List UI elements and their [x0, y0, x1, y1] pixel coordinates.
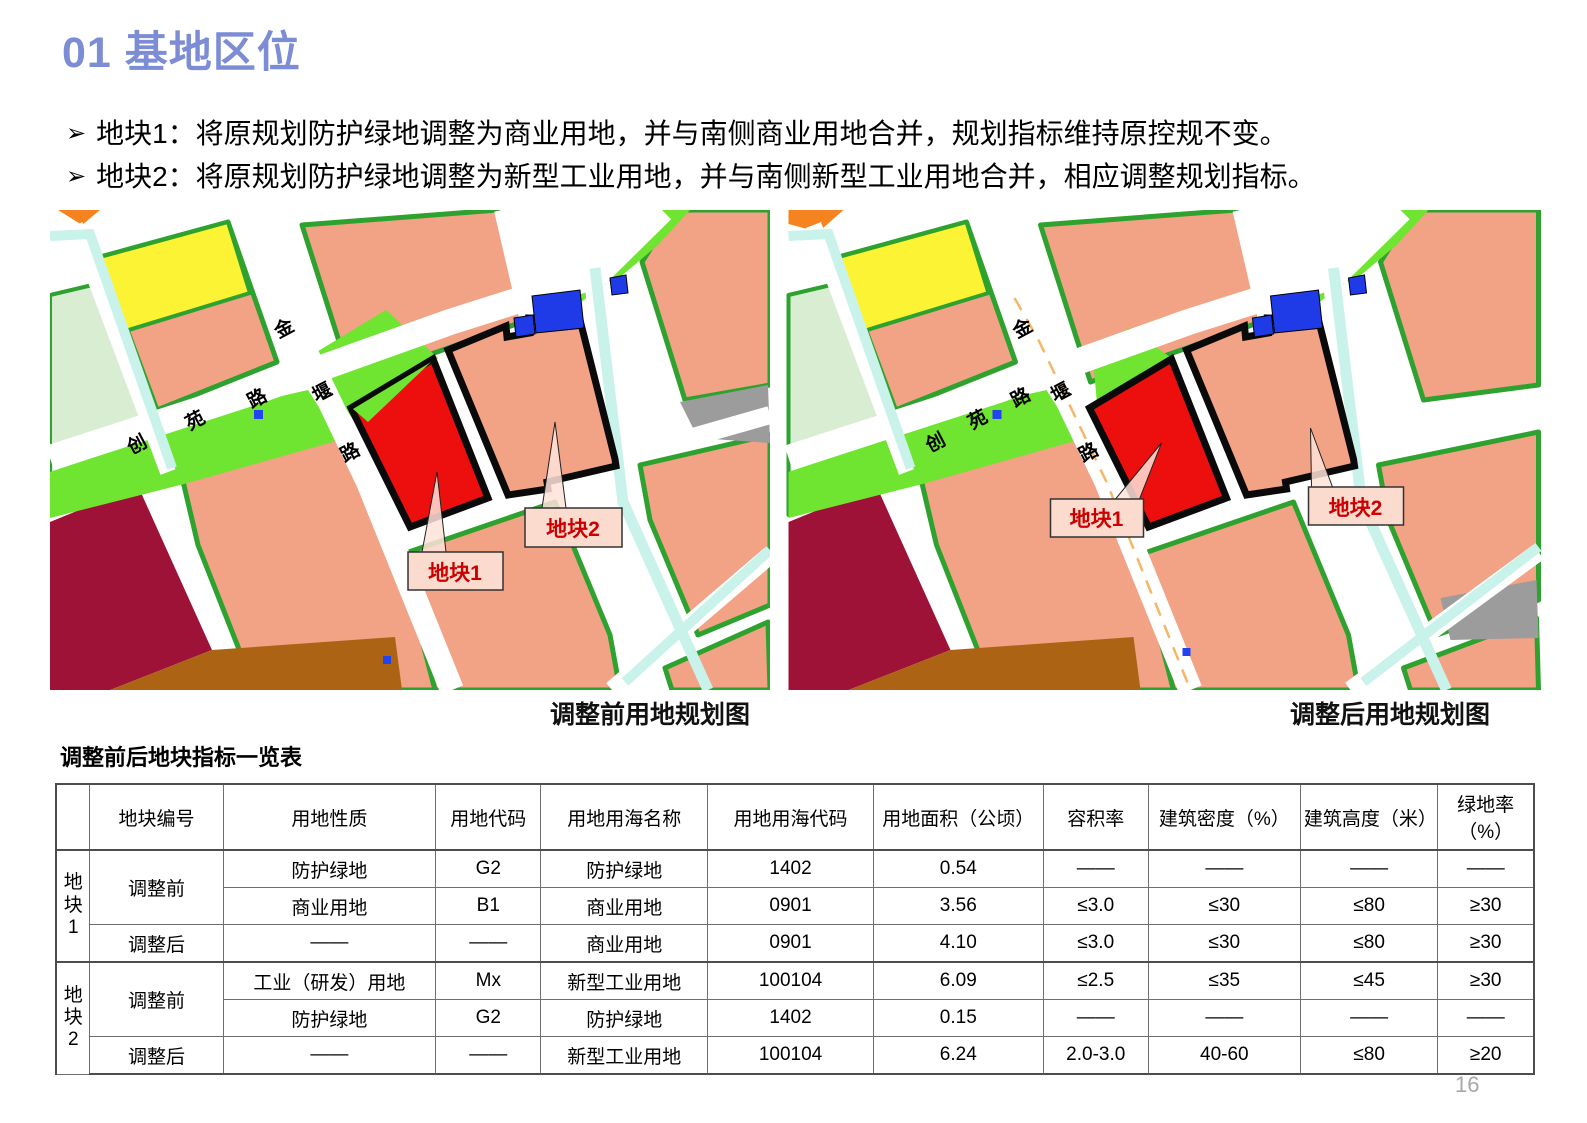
table-cell: 防护绿地: [541, 850, 708, 888]
table-header-row: 地块编号 用地性质 用地代码 用地用海名称 用地用海代码 用地面积（公顷） 容积…: [56, 784, 1534, 850]
table-cell: ——: [1043, 850, 1148, 888]
page-title: 01 基地区位: [62, 18, 301, 80]
block-2-id-cell: 地 块 2: [56, 962, 90, 1074]
table-cell: ——: [1148, 850, 1300, 888]
table-cell: 防护绿地: [223, 850, 436, 888]
bullet-text: 地块1：将原规划防护绿地调整为商业用地，并与南侧商业用地合并，规划指标维持原控规…: [96, 116, 1288, 152]
table-cell: 6.24: [873, 1037, 1043, 1075]
parcel-1-label: 地块1: [428, 561, 482, 585]
table-row: 地 块 2 调整前 工业（研发）用地 Mx 新型工业用地 100104 6.09…: [56, 962, 1534, 1000]
table-cell: ——: [436, 925, 541, 963]
table-row: 调整后 —— —— 商业用地 0901 4.10 ≤3.0 ≤30 ≤80 ≥3…: [56, 925, 1534, 963]
table-cell: ≥20: [1438, 1037, 1534, 1075]
page-number: 16: [1455, 1072, 1479, 1098]
table-cell: ≥30: [1438, 962, 1534, 1000]
table-row: 防护绿地 G2 防护绿地 1402 0.15 —— —— —— ——: [56, 1000, 1534, 1037]
header-cell: 用地代码: [436, 784, 541, 850]
table-cell: G2: [436, 1000, 541, 1037]
header-cell: 用地面积（公顷）: [873, 784, 1043, 850]
table-cell: 100104: [708, 1037, 874, 1075]
table-cell: 0.54: [873, 850, 1043, 888]
table-cell: Mx: [436, 962, 541, 1000]
table-cell: 1402: [708, 850, 874, 888]
table-cell: ≥30: [1438, 925, 1534, 963]
parcel-1-label: 地块1: [1070, 507, 1124, 531]
table-cell: ≤45: [1300, 962, 1437, 1000]
table-cell: ≤3.0: [1043, 888, 1148, 925]
table-cell: ——: [1148, 1000, 1300, 1037]
map-caption-after: 调整后用地规划图: [1290, 695, 1490, 731]
summary-bullets: ➢ 地块1：将原规划防护绿地调整为商业用地，并与南侧商业用地合并，规划指标维持原…: [66, 116, 1316, 202]
table-cell: 工业（研发）用地: [223, 962, 436, 1000]
table-cell: ——: [1438, 1000, 1534, 1037]
table-cell: 防护绿地: [223, 1000, 436, 1037]
phase-cell: 调整后: [90, 1037, 223, 1075]
table-row: 调整后 —— —— 新型工业用地 100104 6.24 2.0-3.0 40-…: [56, 1037, 1534, 1075]
table-cell: 1402: [708, 1000, 874, 1037]
header-cell: 建筑高度（米）: [1300, 784, 1437, 850]
table-cell: 商业用地: [541, 925, 708, 963]
table-row: 地 块 1 调整前 防护绿地 G2 防护绿地 1402 0.54 —— —— —…: [56, 850, 1534, 888]
parcel-indicator-table: 地块编号 用地性质 用地代码 用地用海名称 用地用海代码 用地面积（公顷） 容积…: [55, 783, 1535, 1075]
table-cell: 2.0-3.0: [1043, 1037, 1148, 1075]
header-cell: [56, 784, 90, 850]
table-cell: ≤80: [1300, 888, 1437, 925]
table-cell: 100104: [708, 962, 874, 1000]
phase-cell: 调整前: [90, 850, 223, 925]
table-cell: ——: [1300, 850, 1437, 888]
header-cell: 建筑密度（%）: [1148, 784, 1300, 850]
table-cell: ——: [223, 925, 436, 963]
header-cell: 地块编号: [90, 784, 223, 850]
header-cell: 用地性质: [223, 784, 436, 850]
table-cell: 商业用地: [223, 888, 436, 925]
parcel-2-label: 地块2: [1329, 496, 1383, 520]
table-cell: G2: [436, 850, 541, 888]
table-cell: 0901: [708, 888, 874, 925]
table-title: 调整前后地块指标一览表: [60, 740, 302, 772]
phase-cell: 调整后: [90, 925, 223, 963]
bullet-text: 地块2：将原规划防护绿地调整为新型工业用地，并与南侧新型工业用地合并，相应调整规…: [96, 159, 1316, 195]
table-cell: ——: [436, 1037, 541, 1075]
header-cell: 用地用海名称: [541, 784, 708, 850]
table-cell: 新型工业用地: [541, 1037, 708, 1075]
table-cell: 3.56: [873, 888, 1043, 925]
parcel-2-label: 地块2: [546, 517, 600, 541]
land-use-map-before: 地块1 地块2 创 苑 路 金 堰 路: [50, 210, 770, 690]
header-cell: 容积率: [1043, 784, 1148, 850]
bullet-arrow-icon: ➢: [66, 159, 86, 195]
table-cell: 0901: [708, 925, 874, 963]
table-cell: ≤2.5: [1043, 962, 1148, 1000]
table-cell: ≤3.0: [1043, 925, 1148, 963]
bullet-arrow-icon: ➢: [66, 116, 86, 152]
header-cell: 用地用海代码: [708, 784, 874, 850]
table-cell: 商业用地: [541, 888, 708, 925]
table-cell: ≤30: [1148, 888, 1300, 925]
table-cell: ≤80: [1300, 925, 1437, 963]
table-cell: ≤30: [1148, 925, 1300, 963]
block-1-id-cell: 地 块 1: [56, 850, 90, 962]
table-cell: ≤35: [1148, 962, 1300, 1000]
table-cell: 新型工业用地: [541, 962, 708, 1000]
phase-cell: 调整前: [90, 962, 223, 1037]
table-cell: 6.09: [873, 962, 1043, 1000]
table-cell: ≥30: [1438, 888, 1534, 925]
map-caption-before: 调整前用地规划图: [550, 695, 750, 731]
table-cell: ——: [1043, 1000, 1148, 1037]
table-cell: ≤80: [1300, 1037, 1437, 1075]
land-use-map-after: 地块1 地块2 创 苑 路 金 堰 路: [786, 210, 1541, 690]
table-cell: B1: [436, 888, 541, 925]
table-cell: 防护绿地: [541, 1000, 708, 1037]
bullet-item: ➢ 地块1：将原规划防护绿地调整为商业用地，并与南侧商业用地合并，规划指标维持原…: [66, 116, 1316, 152]
header-cell: 绿地率（%）: [1438, 784, 1534, 850]
table-cell: 0.15: [873, 1000, 1043, 1037]
bullet-item: ➢ 地块2：将原规划防护绿地调整为新型工业用地，并与南侧新型工业用地合并，相应调…: [66, 159, 1316, 195]
table-cell: ——: [1438, 850, 1534, 888]
table-row: 商业用地 B1 商业用地 0901 3.56 ≤3.0 ≤30 ≤80 ≥30: [56, 888, 1534, 925]
table-cell: ——: [1300, 1000, 1437, 1037]
table-cell: 40-60: [1148, 1037, 1300, 1075]
table-cell: ——: [223, 1037, 436, 1075]
table-cell: 4.10: [873, 925, 1043, 963]
